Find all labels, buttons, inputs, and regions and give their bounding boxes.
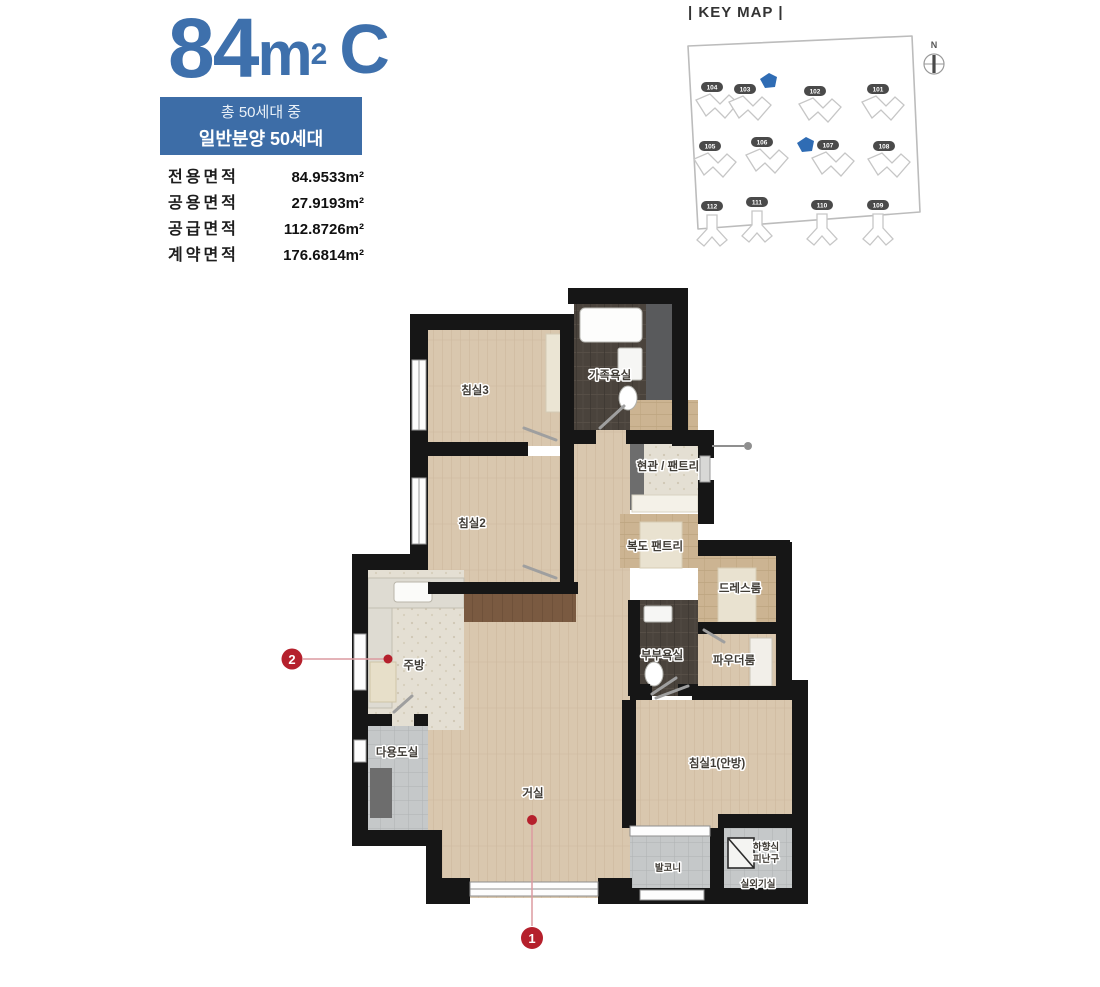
label-bedroom1: 침실1(안방) xyxy=(689,756,746,770)
building-number: 103 xyxy=(740,87,751,94)
kitchen-island xyxy=(464,594,576,622)
table-row: 전용면적 84.9533m² xyxy=(168,163,364,189)
wall xyxy=(598,878,632,904)
wall xyxy=(628,600,640,696)
wall xyxy=(428,878,470,904)
marker-2-number: 2 xyxy=(288,652,295,667)
supply-badge: 총 50세대 중 일반분양 50세대 xyxy=(160,97,362,155)
label-bedroom2: 침실2 xyxy=(458,516,486,530)
wall-corridor xyxy=(560,314,574,582)
wall xyxy=(776,542,792,692)
wall xyxy=(410,314,568,330)
area-row-value: 112.8726m² xyxy=(284,221,364,238)
label-evac-hatch-1: 하향식 xyxy=(753,841,779,853)
supply-badge-line2: 일반분양 50세대 xyxy=(199,125,323,151)
wall-left-lower xyxy=(352,554,368,840)
bedroom3-closet xyxy=(546,334,562,412)
key-map-title: | KEY MAP | xyxy=(688,4,784,21)
duct-shaft xyxy=(646,304,672,402)
wall xyxy=(672,288,688,446)
dressroom-mat xyxy=(718,568,756,622)
compass-icon: N xyxy=(924,40,944,74)
building-number: 101 xyxy=(873,87,884,94)
building-number: 104 xyxy=(707,85,718,92)
building-number: 108 xyxy=(879,144,890,151)
flyer-page: 84 m2 C 총 50세대 중 일반분양 50세대 전용면적 84.9533m… xyxy=(0,0,1100,987)
area-row-label: 공급면적 xyxy=(168,215,239,239)
washer-space xyxy=(370,768,392,818)
master-bath-toilet xyxy=(645,662,663,686)
area-table: 전용면적 84.9533m² 공용면적 27.9193m² 공급면적 112.8… xyxy=(168,163,364,267)
key-map: 104103102101105106107108112111110109 N xyxy=(680,24,960,264)
unit-area-value: 84 xyxy=(168,6,257,90)
bedroom2-floor xyxy=(428,456,560,582)
label-balcony: 발코니 xyxy=(655,862,681,874)
building-number: 106 xyxy=(757,140,768,147)
building-footprint xyxy=(863,214,893,245)
entrance-door xyxy=(700,456,710,482)
kitchen-sink xyxy=(394,582,432,602)
area-row-label: 공용면적 xyxy=(168,189,239,213)
table-row: 계약면적 176.6814m² xyxy=(168,241,364,267)
window-balcony xyxy=(640,890,704,900)
wall xyxy=(574,430,596,444)
building-number: 110 xyxy=(817,203,828,210)
label-powder-room: 파우더룸 xyxy=(713,653,756,667)
wall-outdoor-top xyxy=(718,814,808,828)
area-row-label: 전용면적 xyxy=(168,163,239,187)
building-number: 107 xyxy=(823,143,834,150)
marker-1-number: 1 xyxy=(528,931,535,946)
area-row-value: 176.6814m² xyxy=(283,247,364,264)
wall xyxy=(698,480,714,524)
wall xyxy=(698,540,790,556)
label-bedroom3: 침실3 xyxy=(461,383,489,397)
label-entrance-pantry: 현관 / 팬트리 xyxy=(637,459,700,473)
bedroom3-floor xyxy=(428,330,560,446)
site-boundary xyxy=(688,36,920,229)
bathtub xyxy=(580,308,642,342)
wall xyxy=(414,714,428,726)
area-row-value: 27.9193m² xyxy=(291,195,364,212)
label-corridor-pantry: 복도 팬트리 xyxy=(627,539,683,553)
unit-area-unit: m2 xyxy=(257,24,325,86)
label-family-bath: 가족욕실 xyxy=(589,368,631,382)
floor-plan: 침실3 가족욕실 현관 / 팬트리 침실2 복도 팬트리 드레스룸 부부욕실 파… xyxy=(352,282,812,912)
window-kitchen xyxy=(354,634,366,690)
wall-balcony-divider xyxy=(710,828,724,900)
fridge-space xyxy=(370,662,396,702)
label-outdoor-unit: 실외기실 xyxy=(741,878,776,890)
window-bedroom1-balcony xyxy=(630,826,710,836)
wall-bed1-top xyxy=(630,686,652,700)
unit-type-label: C xyxy=(339,14,390,84)
wall-bed3-bed2 xyxy=(428,442,528,456)
wall-right-lower xyxy=(792,686,808,904)
label-evac-hatch-2: 피난구 xyxy=(753,853,779,865)
label-dressroom: 드레스룸 xyxy=(719,581,762,595)
unit-area-unit-sup: 2 xyxy=(311,38,326,71)
building-number: 111 xyxy=(752,200,763,207)
window-utility xyxy=(354,740,366,762)
label-living: 거실 xyxy=(522,786,543,800)
label-kitchen: 주방 xyxy=(403,658,425,672)
table-row: 공급면적 112.8726m² xyxy=(168,215,364,241)
building-number: 109 xyxy=(873,203,884,210)
table-row: 공용면적 27.9193m² xyxy=(168,189,364,215)
wall-bath-bottom xyxy=(626,430,688,444)
marker-1-badge xyxy=(521,927,543,949)
building: 110 xyxy=(807,200,837,245)
supply-badge-line1: 총 50세대 중 xyxy=(221,101,301,122)
compass-north-label: N xyxy=(931,40,938,50)
master-bath-sink xyxy=(644,606,672,622)
room-floors xyxy=(368,304,794,898)
unit-title: 84 m2 C xyxy=(168,6,390,90)
building-number: 105 xyxy=(705,144,716,151)
wall xyxy=(568,288,688,304)
label-utility: 다용도실 xyxy=(376,745,418,759)
wall-bed1-top xyxy=(692,686,794,700)
building-number: 112 xyxy=(707,204,718,211)
wall-bed2-bottom xyxy=(428,582,578,594)
building-number: 102 xyxy=(810,89,821,96)
building: 109 xyxy=(863,200,893,245)
label-master-bath: 부부욕실 xyxy=(641,648,683,662)
wall xyxy=(698,430,714,458)
area-row-label: 계약면적 xyxy=(168,241,239,265)
area-row-value: 84.9533m² xyxy=(291,169,364,186)
entrance-step xyxy=(632,495,698,512)
wall-living-bed1 xyxy=(622,700,636,828)
wall-kitchen-utility xyxy=(358,714,392,726)
marker-2-badge xyxy=(282,649,303,670)
